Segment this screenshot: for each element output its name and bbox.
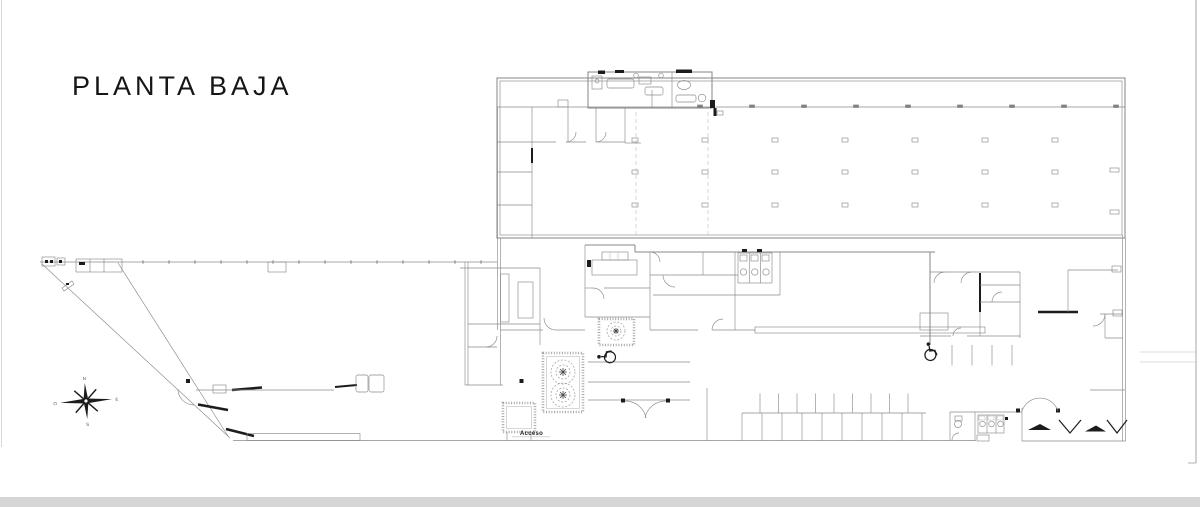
direction-arrow-icon [1028, 424, 1051, 430]
gate-leaf [226, 429, 254, 436]
chevron-marker-icon [1107, 420, 1127, 433]
column [632, 138, 638, 142]
compass-north-label: N [83, 376, 87, 381]
column [842, 203, 848, 207]
column-tick [1061, 105, 1067, 108]
plan-title: PLANTA BAJA [72, 71, 293, 101]
door-swing [663, 275, 675, 287]
staircase-vertical [501, 274, 534, 322]
column [912, 138, 918, 142]
yard-diagonal-outer [42, 264, 230, 438]
column-tick [801, 105, 807, 108]
kitchen-block [588, 70, 723, 117]
door-swing [593, 288, 604, 299]
compass-south-label: S [86, 422, 89, 427]
door-swing [992, 292, 1002, 302]
column [702, 138, 708, 142]
column [842, 170, 848, 174]
chevron-marker-icon [1059, 420, 1081, 433]
parking-row-right [952, 345, 1012, 366]
door-swing [934, 272, 945, 283]
column-tick [697, 105, 703, 108]
gate-leaf [232, 388, 262, 391]
hall-inner-wall [500, 81, 1122, 235]
entrance-double-door [621, 399, 670, 419]
direction-arrow-icon [1085, 426, 1106, 432]
column [772, 170, 778, 174]
wheelchair-icon [597, 350, 616, 364]
column [912, 170, 918, 174]
planter-large [543, 353, 583, 412]
door-swing [650, 252, 660, 262]
door-swing [544, 318, 556, 330]
planter-small [503, 403, 535, 432]
floor-grille [920, 313, 948, 330]
office-band [460, 107, 1196, 390]
yard-area [40, 257, 497, 438]
floor-plan-sheet: PLANTA BAJA [0, 0, 1200, 507]
column [632, 203, 638, 207]
ground-works: Acceso [233, 319, 1127, 441]
column [1052, 170, 1058, 174]
door-swing [596, 132, 606, 142]
door-swing [952, 433, 959, 440]
column [632, 170, 638, 174]
services-cluster [950, 408, 1126, 441]
tree-icon [551, 383, 575, 407]
stair-core [587, 252, 637, 275]
planter-medium [599, 319, 634, 345]
textured-wall-strip [755, 327, 985, 333]
column-tick [749, 105, 755, 108]
column [1052, 203, 1058, 207]
compass-west-label: O [53, 401, 57, 406]
parking-row-lower [742, 413, 922, 440]
column-tick [1113, 105, 1119, 108]
wc-fixture [678, 81, 691, 90]
door-swing [712, 319, 723, 330]
tree-icon [607, 322, 625, 340]
wc-block [738, 249, 772, 283]
column [842, 138, 848, 142]
parking-row-upper [760, 394, 908, 413]
door-swing [1093, 314, 1105, 326]
column [702, 170, 708, 174]
column [982, 203, 988, 207]
column-tick [853, 105, 859, 108]
column [912, 203, 918, 207]
door-swing [961, 272, 972, 283]
compass-east-label: E [115, 397, 118, 402]
hall-outer-wall [497, 78, 1125, 238]
counter [607, 79, 634, 88]
fence-hatch [247, 434, 360, 441]
table [369, 375, 384, 392]
floor-plan-drawing: PLANTA BAJA [0, 0, 1200, 507]
gate-leaf [198, 405, 228, 411]
hall-left-rooms [497, 100, 641, 238]
column [982, 170, 988, 174]
main-hall [497, 70, 1126, 442]
column-tick [957, 105, 963, 108]
tree-icon [551, 360, 575, 384]
sheet-bottom-edge [0, 497, 1200, 507]
right-rooms [920, 266, 1196, 390]
compass-rose: N S E O [52, 374, 121, 429]
column [772, 138, 778, 142]
door-swing [953, 328, 961, 336]
table [356, 375, 368, 392]
door-swing [486, 336, 497, 347]
column [1052, 138, 1058, 142]
hall-column-grid [632, 138, 1058, 207]
access-label: Acceso [520, 431, 543, 437]
column [772, 203, 778, 207]
column-tick [1009, 105, 1015, 108]
vehicle-gate [1016, 398, 1127, 433]
column [702, 203, 708, 207]
door-swing [566, 132, 576, 142]
column [982, 138, 988, 142]
column-tick [905, 105, 911, 108]
